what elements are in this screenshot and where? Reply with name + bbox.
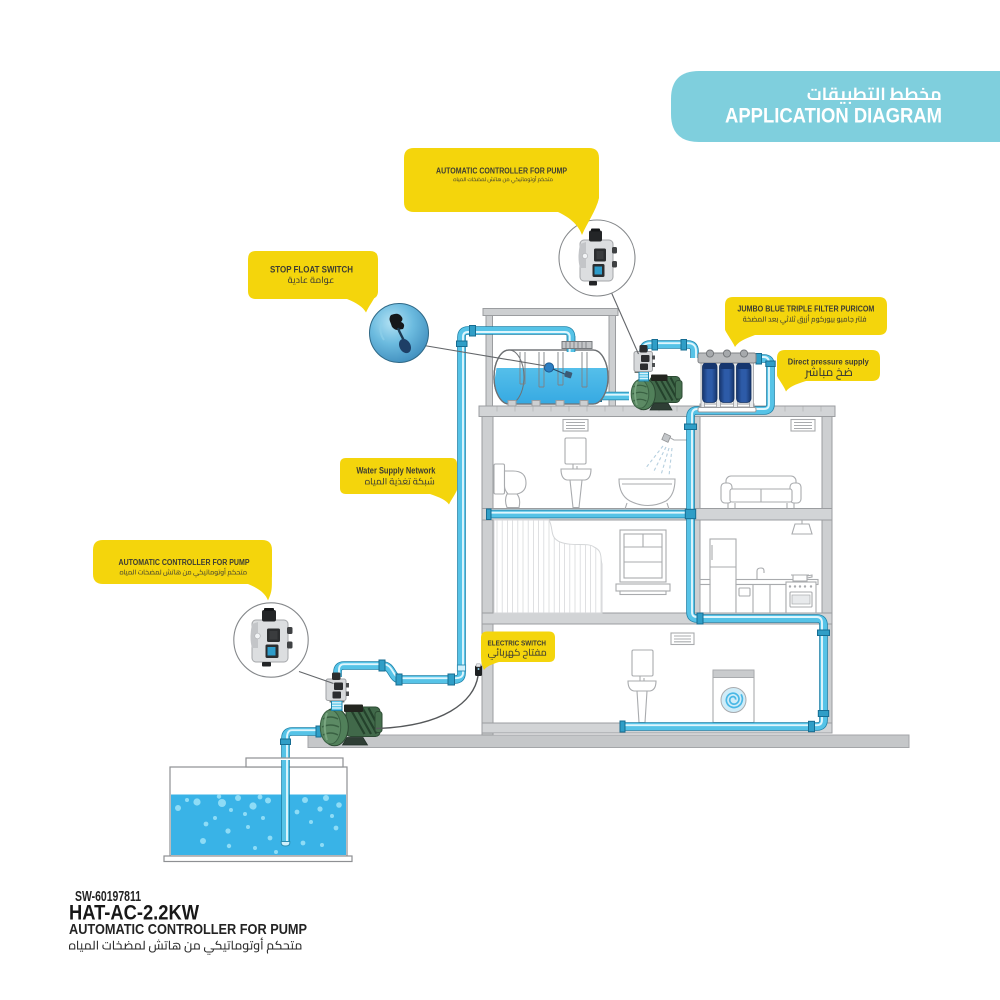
svg-text:APPLICATION DIAGRAM: APPLICATION DIAGRAM [725, 105, 942, 128]
svg-text:STOP FLOAT SWITCH: STOP FLOAT SWITCH [270, 265, 353, 275]
svg-text:AUTOMATIC CONTROLLER FOR PUMP: AUTOMATIC CONTROLLER FOR PUMP [119, 557, 250, 567]
svg-text:JUMBO BLUE TRIPLE FILTER PURIC: JUMBO BLUE TRIPLE FILTER PURICOM [737, 305, 874, 314]
svg-text:AUTOMATIC CONTROLLER FOR PUMP: AUTOMATIC CONTROLLER FOR PUMP [69, 922, 307, 938]
svg-text:AUTOMATIC CONTROLLER FOR PUMP: AUTOMATIC CONTROLLER FOR PUMP [436, 166, 567, 176]
svg-text:Direct pressure supply: Direct pressure supply [788, 357, 869, 367]
svg-text:ELECTRIC SWITCH: ELECTRIC SWITCH [488, 639, 547, 648]
svg-text:Water Supply Network: Water Supply Network [356, 466, 435, 476]
